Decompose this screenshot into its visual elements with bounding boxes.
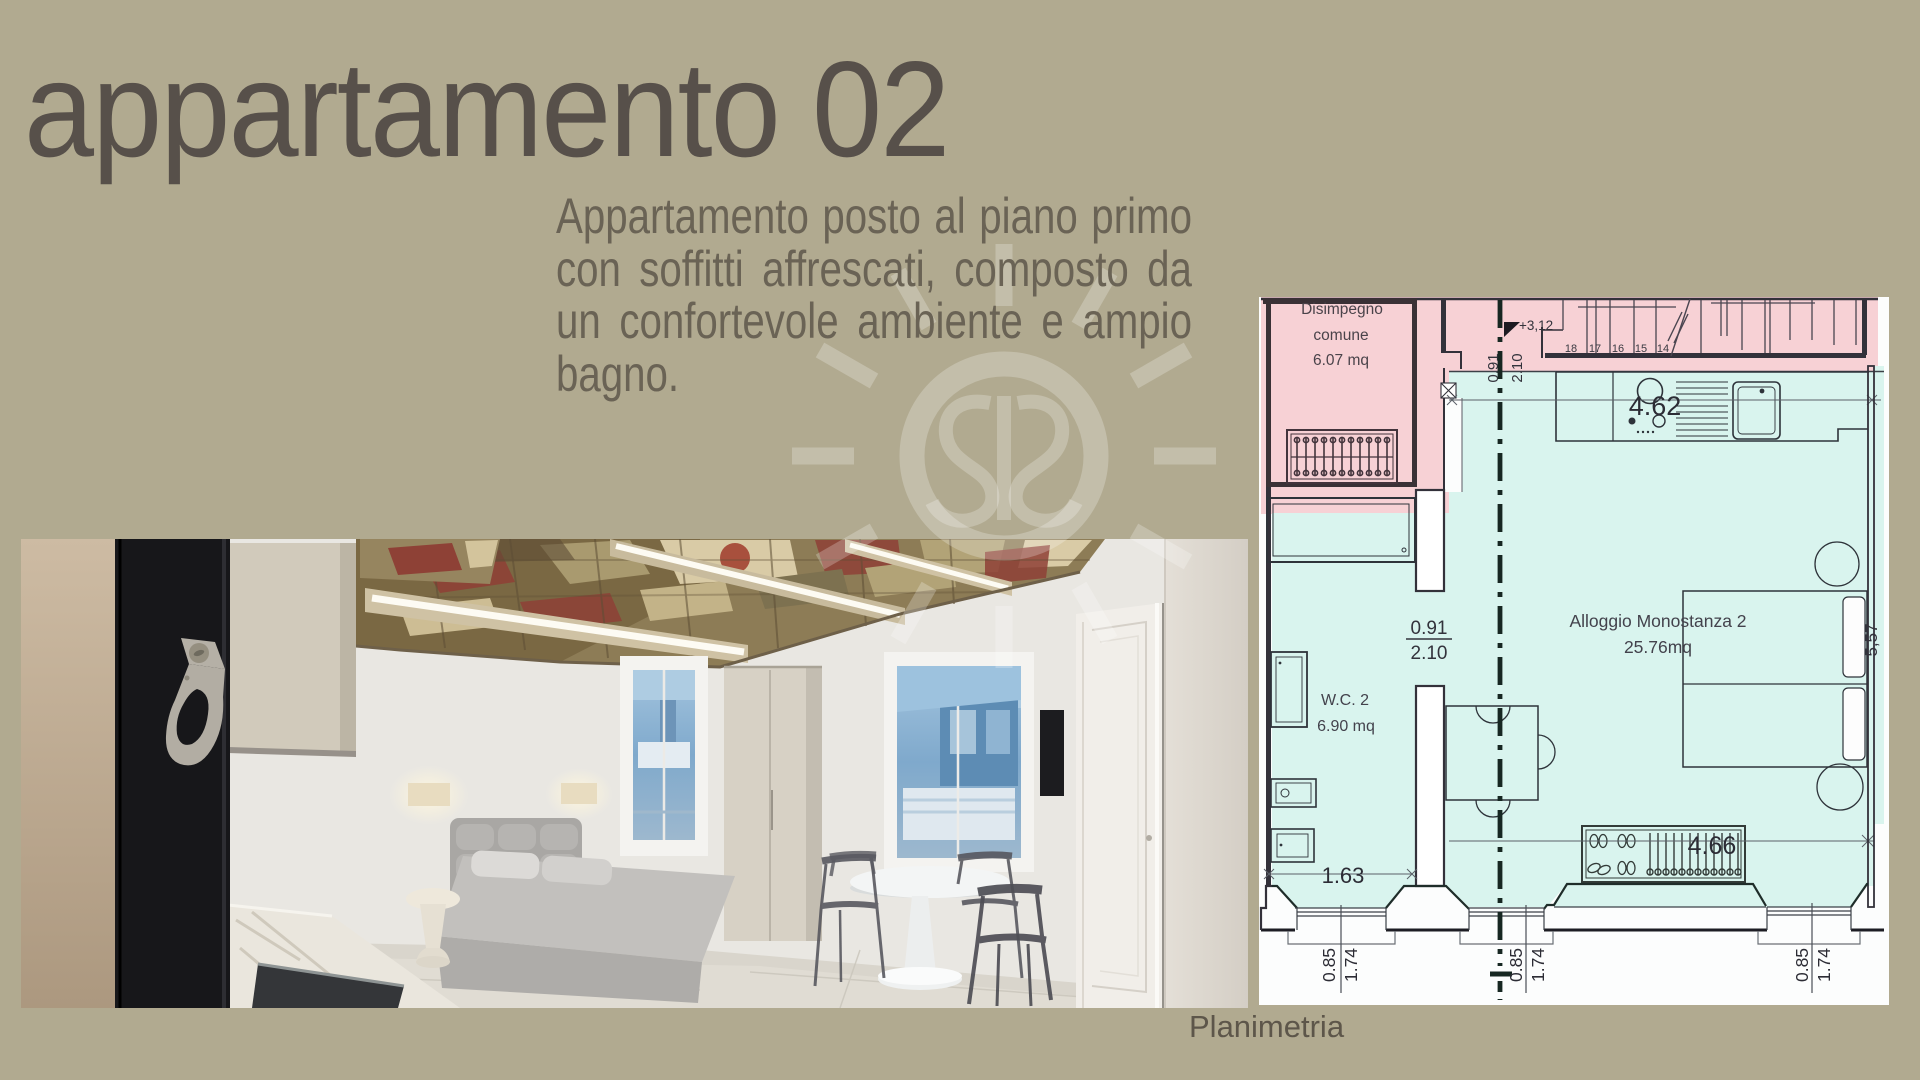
svg-text:4.66: 4.66 bbox=[1688, 832, 1737, 860]
svg-text:15: 15 bbox=[1635, 343, 1647, 355]
svg-text:17: 17 bbox=[1589, 343, 1601, 355]
svg-text:1.63: 1.63 bbox=[1322, 863, 1365, 888]
svg-text:14: 14 bbox=[1657, 343, 1669, 355]
svg-text:5,57: 5,57 bbox=[1862, 623, 1881, 656]
svg-text:18: 18 bbox=[1565, 343, 1577, 355]
svg-text:0.91: 0.91 bbox=[1411, 618, 1448, 639]
svg-text:6.07 mq: 6.07 mq bbox=[1313, 352, 1369, 369]
svg-text:1.74: 1.74 bbox=[1528, 948, 1548, 982]
svg-text:16: 16 bbox=[1612, 343, 1624, 355]
svg-text:25.76mq: 25.76mq bbox=[1624, 637, 1692, 657]
svg-text:0.85: 0.85 bbox=[1792, 948, 1812, 982]
svg-text:2.10: 2.10 bbox=[1509, 353, 1526, 382]
svg-text:4.62: 4.62 bbox=[1629, 391, 1682, 421]
svg-text:1.74: 1.74 bbox=[1341, 948, 1361, 982]
svg-text:Disimpegno: Disimpegno bbox=[1301, 301, 1383, 318]
svg-text:0.85: 0.85 bbox=[1319, 948, 1339, 982]
svg-text:W.C. 2: W.C. 2 bbox=[1321, 692, 1369, 709]
svg-text:1.74: 1.74 bbox=[1814, 948, 1834, 982]
svg-text:0.85: 0.85 bbox=[1506, 948, 1526, 982]
svg-text:6.90 mq: 6.90 mq bbox=[1317, 718, 1375, 735]
svg-text:comune: comune bbox=[1313, 327, 1368, 344]
svg-text:Alloggio Monostanza 2: Alloggio Monostanza 2 bbox=[1569, 611, 1746, 631]
svg-text:2.10: 2.10 bbox=[1411, 643, 1448, 664]
